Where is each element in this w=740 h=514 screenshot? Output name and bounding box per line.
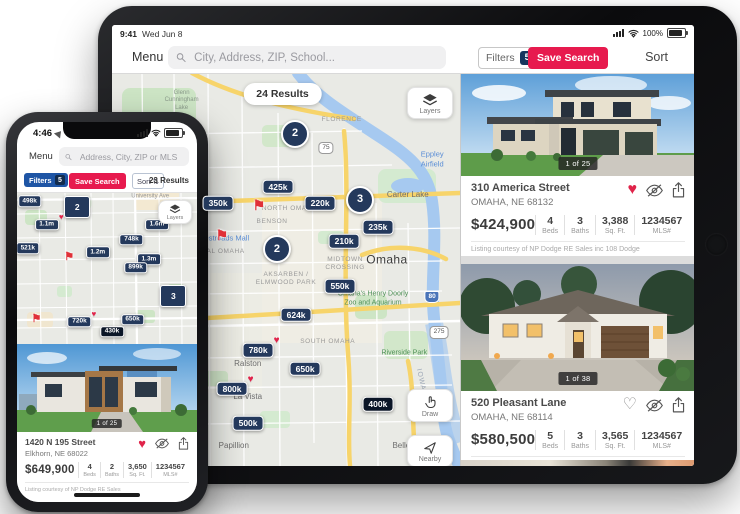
filters-button[interactable]: Filters 5 [24,173,68,187]
sort-button[interactable]: Sort [645,50,668,64]
iphone-filter-bar: Filters 5 Save Search Sort ⇅ 23 Results [17,170,197,193]
next-card-preview [461,460,694,466]
nearby-arrow-icon [423,441,437,455]
property-price: $424,900 [471,216,535,233]
cell-signal-icon [613,29,624,37]
map-pin[interactable]: 748k [120,234,143,246]
stat: 4Beds [78,462,100,478]
property-card[interactable]: 1 of 38 520 Pleasant Lane OMAHA, NE 6811… [461,264,694,466]
map-pin[interactable]: 2 [64,196,90,218]
search-field[interactable] [59,147,189,166]
property-card[interactable]: 1 of 25 1420 N 195 Street Elkhorn, NE 68… [17,344,197,502]
stat: 5Beds [535,430,564,450]
filters-count-badge: 5 [55,175,66,185]
location-arrow-icon [54,129,64,139]
search-field[interactable] [168,46,446,69]
stat: 2Baths [100,462,123,478]
wifi-icon [151,129,161,137]
stat: 3Baths [564,215,595,235]
battery-percent: 100% [643,29,663,38]
property-city: OMAHA, NE 68132 [471,197,570,208]
stat: 3Baths [564,430,595,450]
layers-label: Layers [419,108,440,115]
property-address: 310 America Street [471,182,570,196]
map-pin[interactable]: 220k [305,196,336,211]
map-pin[interactable]: 430k [100,326,123,338]
iphone-device: 4:46 Menu Filters 5 Save Search Sort [6,112,208,512]
photo-count-badge: 1 of 25 [558,157,597,170]
listing-panel[interactable]: 1 of 25 310 America Street OMAHA, NE 681… [460,73,694,466]
ipad-home-button[interactable] [705,233,728,256]
save-search-button[interactable]: Save Search [69,173,126,189]
map-pin[interactable]: 210k [329,234,360,249]
map-pin[interactable]: 500k [233,416,264,431]
menu-button[interactable]: Menu [132,50,163,64]
filters-label: Filters [29,176,52,185]
card-divider [461,256,694,264]
map-pin[interactable]: 550k [324,279,355,294]
share-icon[interactable] [672,397,685,413]
hide-eye-slash-icon[interactable] [646,184,663,197]
results-count-pill: 24 Results [243,83,322,105]
property-city: OMAHA, NE 68114 [471,412,566,423]
stat: 3,650Sq. Ft. [123,462,151,478]
stat: 1234567MLS# [634,430,688,450]
filters-label: Filters [486,52,515,64]
property-photo[interactable]: 1 of 25 [461,73,694,176]
favorite-heart-icon[interactable]: ♡ [623,397,637,413]
ipad-clock: 9:41 [120,29,137,39]
save-search-button[interactable]: Save Search [528,47,608,69]
photo-count-badge: 1 of 38 [558,372,597,385]
nearby-button[interactable]: Nearby [407,435,453,466]
stat: 3,565Sq. Ft. [595,430,634,450]
map-pin[interactable]: 3 [160,285,186,307]
map-pin[interactable]: 498k [18,195,41,207]
map-pin[interactable]: 350k [203,196,234,211]
property-stats: 4Beds3Baths3,388Sq. Ft.1234567MLS# [535,215,688,235]
map-pin[interactable]: 650k [290,361,321,376]
hide-eye-slash-icon[interactable] [646,399,663,412]
hide-eye-slash-icon[interactable] [155,438,169,449]
property-card[interactable]: 1 of 25 310 America Street OMAHA, NE 681… [461,73,694,258]
property-photo[interactable]: 1 of 25 [17,344,197,432]
search-icon [176,52,186,63]
map-pin[interactable]: ⚑ [61,250,78,264]
property-price: $649,900 [25,464,75,476]
favorite-heart-icon[interactable]: ♥ [138,437,146,450]
draw-hand-icon [423,395,438,410]
photo-count-badge: 1 of 25 [92,419,122,428]
iphone-toolbar: Menu [17,144,197,170]
iphone-map[interactable]: University Ave 498k21.1m1.6m748k521k1.2m… [17,192,197,344]
search-icon [65,153,72,161]
cell-signal-icon [137,129,148,137]
map-pin[interactable]: 425k [263,180,294,195]
iphone-clock: 4:46 [33,128,52,139]
iphone-status-bar: 4:46 [17,122,197,144]
ipad-toolbar: Menu Filters 5 Save Search Sort [112,42,694,74]
map-pin[interactable]: 2 [281,120,309,148]
ipad-status-bar: 9:41Wed Jun 8 100% [112,25,694,42]
nearby-label: Nearby [419,456,442,463]
wifi-icon [628,29,639,38]
property-address: 520 Pleasant Lane [471,397,566,411]
map-pin[interactable]: 780k [243,343,274,358]
property-city: Elkhorn, NE 68022 [25,449,95,458]
layers-icon [169,204,181,214]
share-icon[interactable] [672,182,685,198]
iphone-screen: 4:46 Menu Filters 5 Save Search Sort [17,122,197,502]
battery-icon [667,28,686,38]
map-pin[interactable]: 521k [17,242,40,254]
property-price: $580,500 [471,431,535,448]
battery-icon [164,128,183,138]
map-pin[interactable]: 800k [217,381,248,396]
map-pin[interactable]: 650k [121,314,144,326]
draw-label: Draw [422,411,438,418]
draw-button[interactable]: Draw [407,389,453,422]
stat: 4Beds [535,215,564,235]
property-stats: 4Beds2Baths3,650Sq. Ft.1234567MLS# [78,462,189,478]
stat: 1234567MLS# [634,215,688,235]
property-stats: 5Beds3Baths3,565Sq. Ft.1234567MLS# [535,430,688,450]
search-input[interactable] [78,151,183,163]
layers-label: Layers [167,215,184,221]
results-count: 23 Results [149,176,189,185]
map-pin[interactable]: 2 [263,235,291,263]
layers-button[interactable]: Layers [407,87,453,119]
property-photo[interactable]: 1 of 38 [461,264,694,391]
home-indicator[interactable] [74,493,140,497]
share-icon[interactable] [178,437,189,450]
layers-button[interactable]: Layers [158,200,192,224]
map-pin[interactable]: 3 [346,186,374,214]
map-pin[interactable]: 624k [281,307,312,322]
layers-icon [422,93,438,107]
ipad-date: Wed Jun 8 [142,29,182,39]
map-pin[interactable]: 1.2m [86,246,110,258]
favorite-heart-icon[interactable]: ♥ [628,182,638,198]
stat: 3,388Sq. Ft. [595,215,634,235]
map-pin[interactable]: 400k [362,397,393,412]
map-pin[interactable]: ⚑ [28,313,45,327]
search-input[interactable] [192,51,438,65]
property-address: 1420 N 195 Street [25,437,95,448]
map-pin[interactable]: ⚑ [253,198,266,212]
map-pin[interactable]: 1.1m [35,219,59,231]
map-pin[interactable]: 720k [68,316,91,328]
map-pin[interactable]: 235k [362,220,393,235]
map-pin[interactable]: 899k [124,262,147,274]
map-pin[interactable]: ⚑ [216,228,229,242]
menu-button[interactable]: Menu [29,151,53,162]
stat: 1234567MLS# [151,462,189,478]
